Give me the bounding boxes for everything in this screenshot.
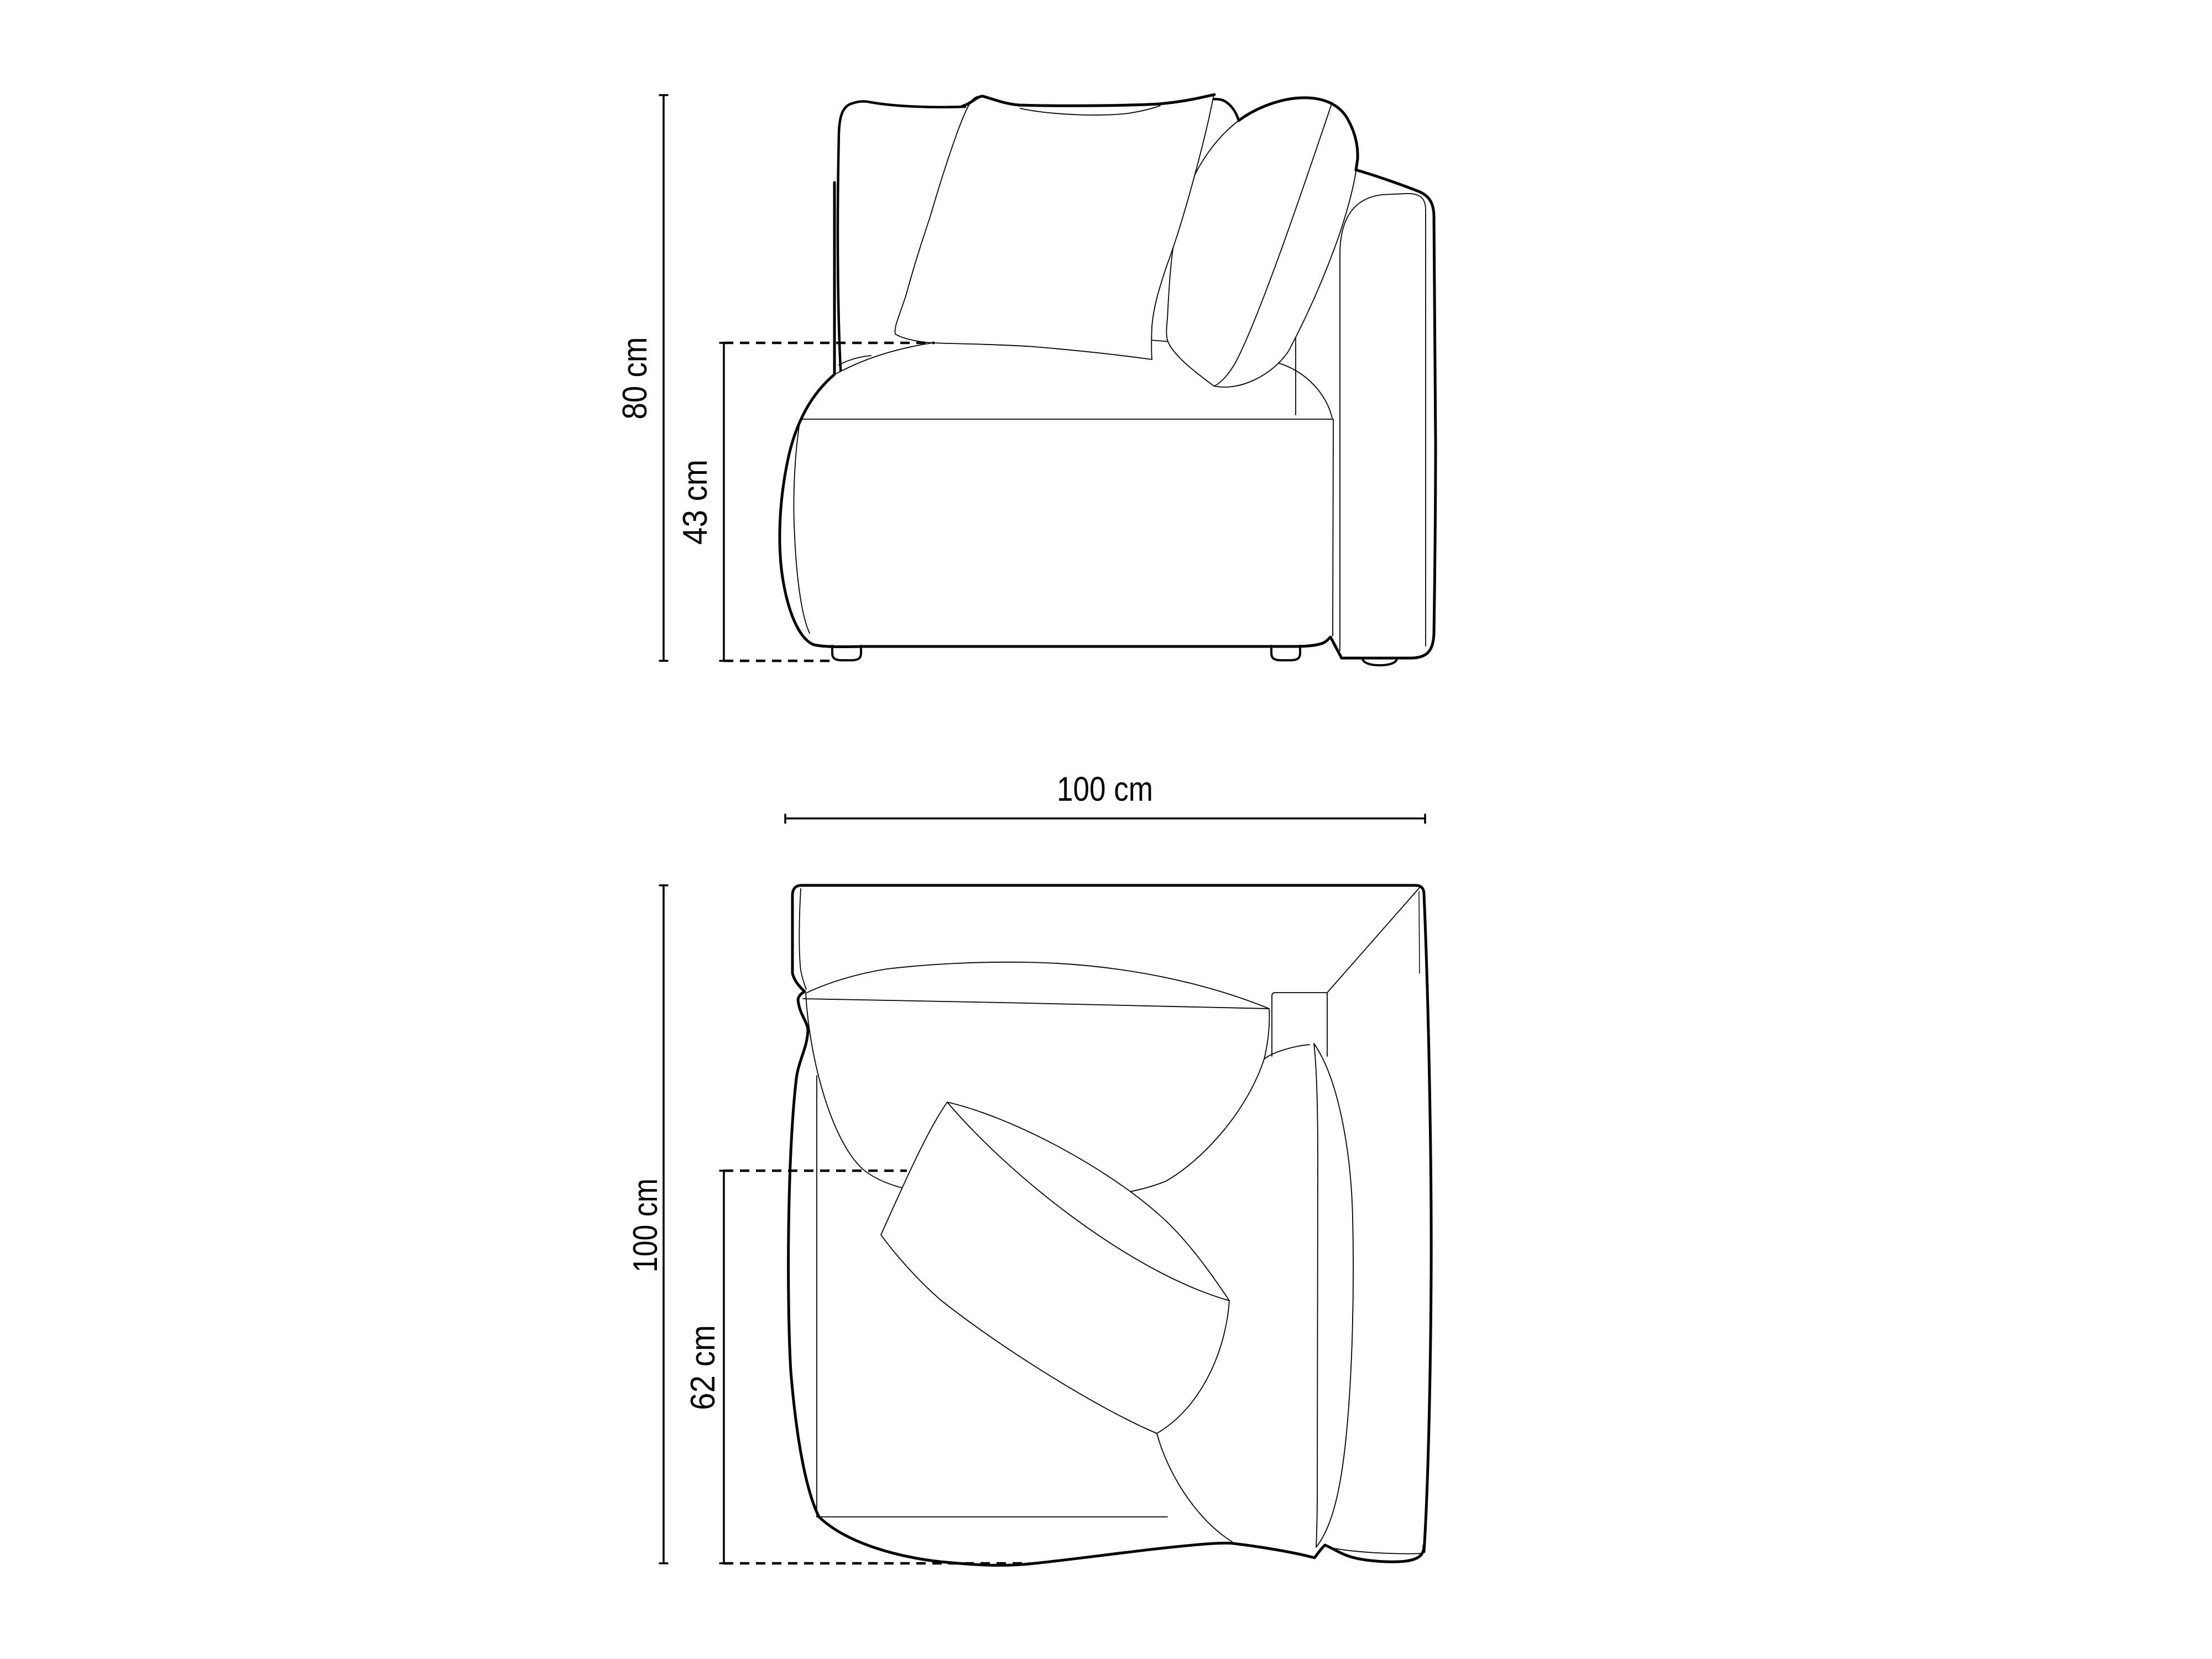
svg-text:62 cm: 62 cm (684, 1325, 722, 1410)
svg-text:80 cm: 80 cm (616, 337, 654, 420)
svg-text:100 cm: 100 cm (1057, 770, 1153, 808)
svg-text:100 cm: 100 cm (627, 1178, 665, 1272)
svg-text:43 cm: 43 cm (676, 460, 714, 545)
